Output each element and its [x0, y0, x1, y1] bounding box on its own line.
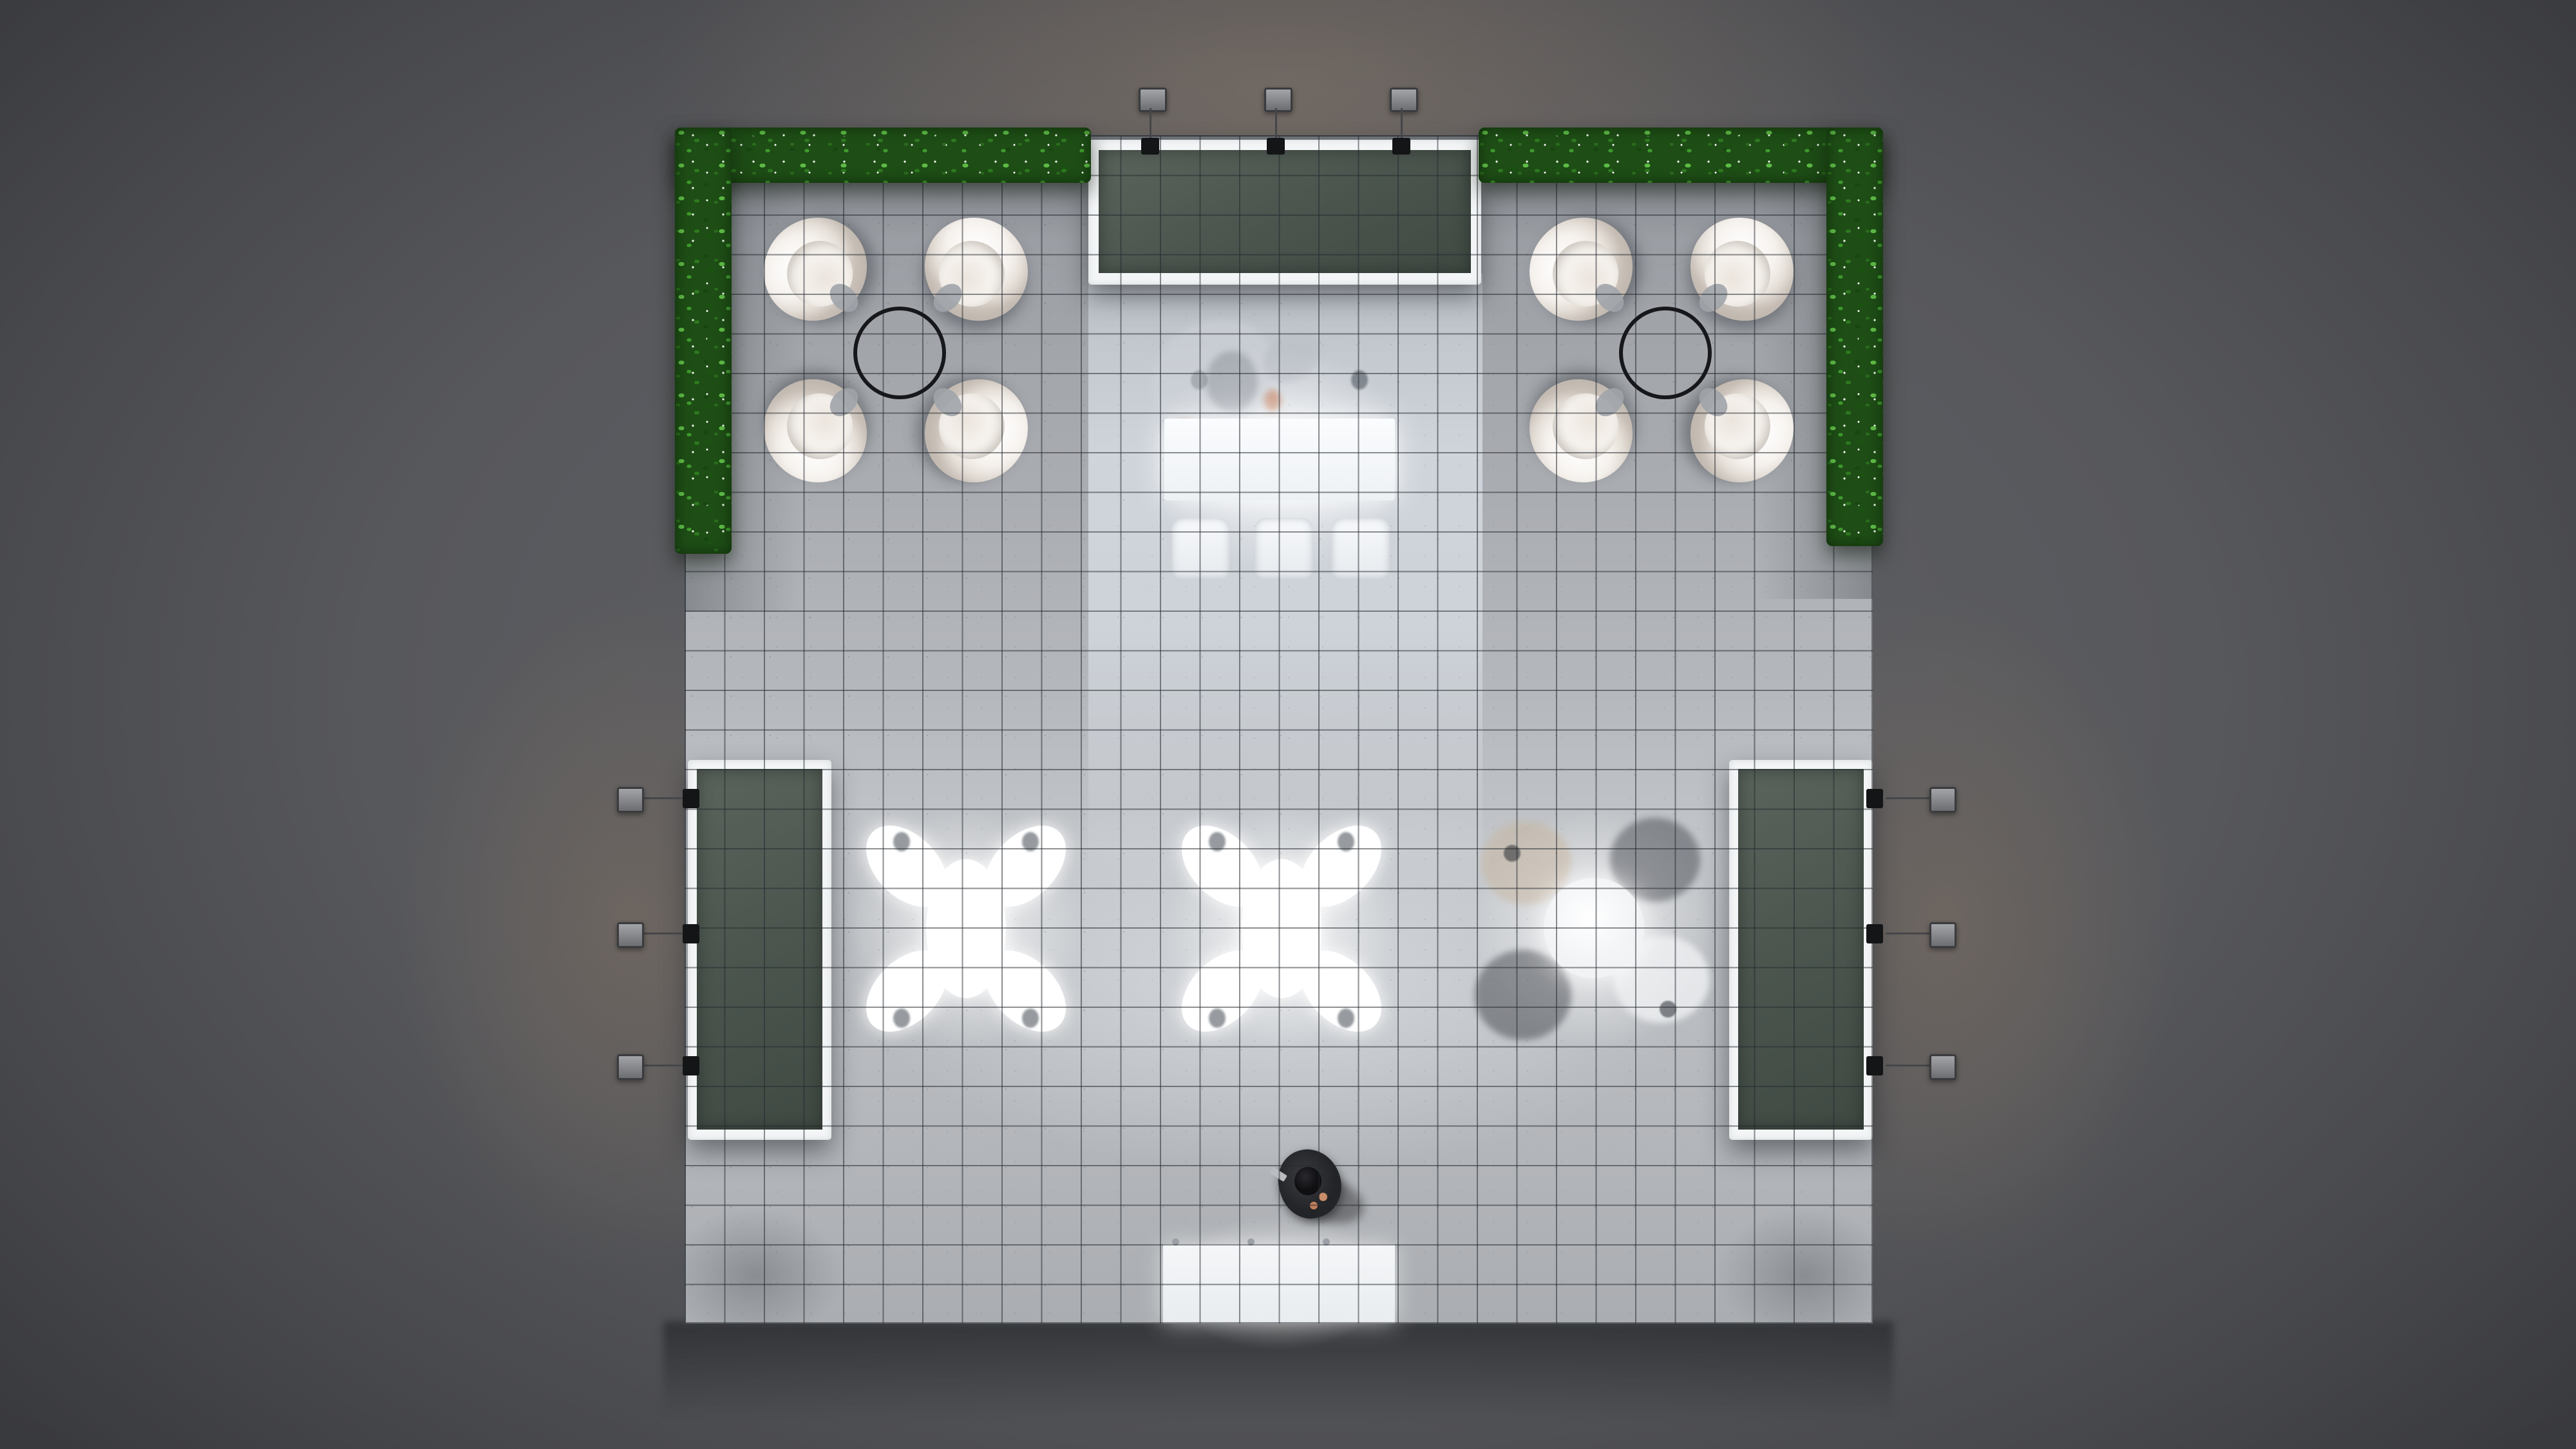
left-side-table-top: [697, 769, 822, 1130]
visitor-hand: [1319, 1193, 1327, 1201]
x-table-group: [869, 806, 1063, 1051]
spotlight-head: [617, 922, 644, 948]
spotlight-clamp: [683, 1056, 699, 1075]
spotlight-head: [617, 787, 644, 813]
spotlight-stem: [1886, 933, 1929, 934]
hedge-top-left: [675, 128, 1091, 183]
x-table-top: [1242, 859, 1321, 998]
spotlight-stem: [1275, 108, 1277, 142]
hedge-top-right: [1479, 128, 1883, 183]
spotlight-stem: [640, 1065, 684, 1066]
reception-chair: [1255, 518, 1313, 579]
spotlight-clamp: [683, 789, 699, 808]
visitor-hand: [1310, 1202, 1318, 1209]
spotlight-head: [1390, 88, 1418, 112]
spotlight-head: [1929, 1054, 1956, 1080]
spotlight-head: [1264, 88, 1293, 112]
round-table-group: [1459, 793, 1729, 1063]
spotlight-stem: [640, 933, 684, 934]
x-table-group: [1185, 806, 1378, 1051]
reception-chair: [1331, 518, 1390, 579]
right-side-table-panel: [1729, 760, 1873, 1140]
spotlight-head: [1929, 787, 1956, 813]
floor-socket-dot: [1351, 370, 1368, 390]
reception-chair: [1171, 518, 1230, 579]
round-table-top: [1544, 878, 1644, 978]
spotlight-clamp: [1866, 1056, 1883, 1075]
back-counter-top: [1099, 150, 1471, 273]
spotlight-clamp: [1866, 924, 1883, 943]
mat-anchor-dot: [1172, 1238, 1179, 1245]
visitor-head: [1294, 1167, 1321, 1195]
spotlight-clamp: [683, 924, 699, 943]
table-knob: [1504, 845, 1520, 862]
spotlight-stem: [1886, 1065, 1929, 1066]
spotlight-stem: [1401, 108, 1403, 142]
spotlight-clamp: [1866, 789, 1883, 808]
left-side-table-panel: [688, 760, 831, 1140]
spotlight-stem: [640, 797, 684, 799]
booth-floor: [685, 135, 1873, 1323]
spotlight-head: [1139, 88, 1167, 112]
spotlight-stem: [1886, 797, 1929, 799]
spotlight-clamp: [1392, 138, 1410, 155]
back-counter-panel: [1088, 140, 1481, 285]
reception-desk: [1164, 419, 1395, 500]
ghost-figure-seated: [1475, 950, 1571, 1040]
hedge-right-side: [1826, 128, 1883, 546]
spotlight-head: [1929, 922, 1956, 948]
table-knob: [1660, 1001, 1676, 1018]
spotlight-head: [617, 1054, 644, 1080]
ring-coffee-table: [853, 307, 946, 399]
mat-anchor-dot: [1247, 1238, 1255, 1245]
right-side-table-top: [1738, 769, 1864, 1130]
booth-render: [0, 0, 2576, 1449]
visitor-figure: [1269, 1145, 1359, 1235]
hedge-left-side: [675, 128, 732, 554]
ring-coffee-table: [1619, 307, 1712, 399]
entrance-mat: [1163, 1244, 1395, 1323]
floor-drop-shadow: [663, 1321, 1893, 1418]
mat-anchor-dot: [1323, 1238, 1330, 1245]
spotlight-clamp: [1141, 138, 1159, 155]
spotlight-stem: [1150, 108, 1151, 142]
x-table-top: [926, 859, 1006, 998]
spotlight-clamp: [1267, 138, 1285, 155]
